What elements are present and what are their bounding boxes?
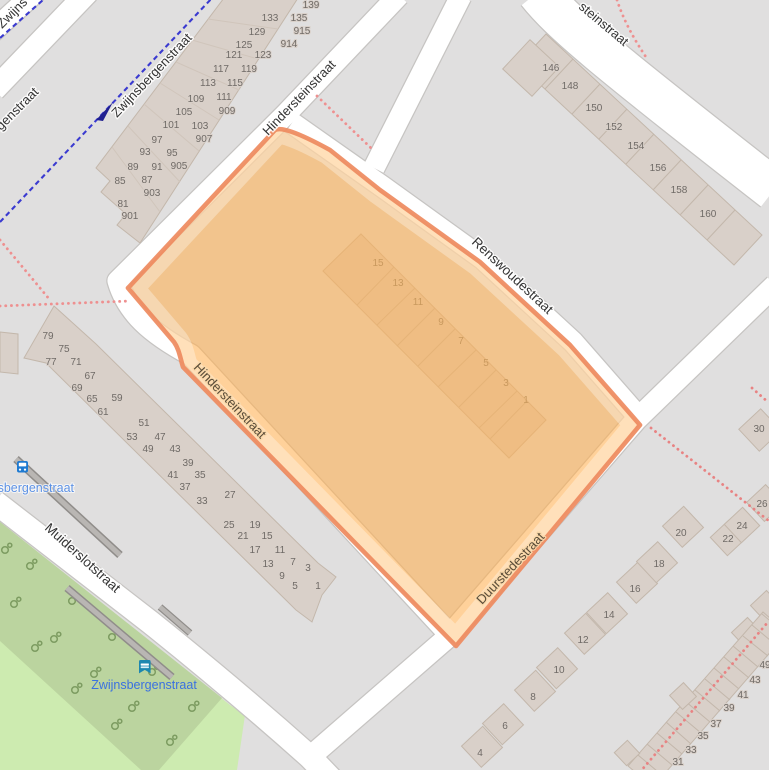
- svg-text:33: 33: [196, 496, 208, 507]
- svg-text:sbergenstraat: sbergenstraat: [0, 481, 75, 495]
- svg-text:35: 35: [697, 731, 709, 742]
- svg-text:61: 61: [97, 407, 109, 418]
- svg-text:111: 111: [216, 92, 232, 103]
- svg-text:30: 30: [753, 424, 765, 435]
- svg-text:49: 49: [759, 660, 769, 671]
- svg-text:89: 89: [127, 162, 139, 173]
- svg-text:75: 75: [58, 344, 70, 355]
- svg-text:65: 65: [86, 394, 98, 405]
- svg-text:4: 4: [477, 748, 483, 759]
- svg-text:117: 117: [213, 64, 229, 75]
- svg-text:25: 25: [223, 520, 235, 531]
- svg-text:105: 105: [176, 107, 193, 118]
- svg-text:19: 19: [249, 520, 261, 531]
- svg-text:7: 7: [458, 336, 464, 347]
- svg-text:97: 97: [151, 135, 163, 146]
- svg-text:69: 69: [71, 383, 83, 394]
- svg-text:119: 119: [241, 64, 257, 75]
- svg-text:93: 93: [139, 147, 151, 158]
- svg-text:17: 17: [249, 545, 261, 556]
- svg-text:13: 13: [392, 278, 404, 289]
- svg-text:21: 21: [237, 531, 249, 542]
- svg-text:903: 903: [144, 188, 161, 199]
- svg-text:152: 152: [606, 122, 623, 133]
- svg-text:909: 909: [219, 106, 236, 117]
- svg-text:109: 109: [188, 94, 205, 105]
- svg-text:3: 3: [503, 378, 509, 389]
- svg-text:113: 113: [200, 78, 216, 89]
- svg-text:27: 27: [224, 490, 236, 501]
- svg-text:22: 22: [722, 534, 734, 545]
- svg-text:11: 11: [275, 545, 286, 556]
- svg-text:Zwijnsbergenstraat: Zwijnsbergenstraat: [91, 678, 197, 692]
- svg-text:79: 79: [42, 331, 54, 342]
- svg-text:1: 1: [523, 395, 529, 406]
- svg-text:133: 133: [262, 13, 279, 24]
- svg-text:915: 915: [294, 26, 311, 37]
- svg-text:35: 35: [194, 470, 206, 481]
- svg-text:77: 77: [45, 357, 57, 368]
- svg-text:85: 85: [114, 176, 126, 187]
- svg-text:39: 39: [182, 458, 194, 469]
- svg-text:5: 5: [483, 358, 489, 369]
- svg-text:907: 907: [196, 134, 213, 145]
- svg-text:43: 43: [749, 675, 761, 686]
- svg-text:37: 37: [710, 719, 722, 730]
- svg-text:103: 103: [192, 121, 209, 132]
- svg-text:53: 53: [126, 432, 138, 443]
- svg-text:41: 41: [167, 470, 179, 481]
- svg-text:146: 146: [543, 63, 560, 74]
- svg-text:15: 15: [261, 531, 273, 542]
- svg-text:67: 67: [84, 371, 96, 382]
- svg-text:129: 129: [249, 27, 266, 38]
- svg-text:12: 12: [577, 635, 589, 646]
- svg-text:901: 901: [122, 211, 139, 222]
- svg-text:3: 3: [305, 563, 311, 574]
- svg-text:123: 123: [255, 50, 272, 61]
- svg-text:13: 13: [262, 559, 274, 570]
- svg-text:18: 18: [653, 559, 665, 570]
- svg-text:7: 7: [290, 557, 296, 568]
- svg-text:49: 49: [142, 444, 154, 455]
- svg-text:26: 26: [756, 499, 768, 510]
- svg-text:11: 11: [413, 297, 424, 308]
- svg-text:135: 135: [291, 13, 308, 24]
- svg-text:33: 33: [685, 745, 697, 756]
- svg-text:9: 9: [279, 571, 285, 582]
- svg-text:158: 158: [671, 185, 688, 196]
- svg-text:87: 87: [141, 175, 153, 186]
- svg-text:15: 15: [372, 258, 384, 269]
- svg-text:81: 81: [117, 199, 129, 210]
- svg-text:95: 95: [166, 148, 178, 159]
- svg-text:115: 115: [227, 78, 243, 89]
- svg-text:41: 41: [737, 690, 749, 701]
- svg-text:101: 101: [163, 120, 180, 131]
- svg-text:139: 139: [303, 0, 320, 11]
- svg-text:6: 6: [502, 721, 508, 732]
- svg-text:31: 31: [672, 757, 684, 768]
- svg-text:914: 914: [281, 39, 298, 50]
- svg-text:905: 905: [171, 161, 188, 172]
- svg-text:39: 39: [723, 703, 735, 714]
- svg-text:8: 8: [530, 692, 536, 703]
- svg-text:91: 91: [151, 162, 163, 173]
- svg-text:51: 51: [138, 418, 150, 429]
- svg-text:37: 37: [179, 482, 191, 493]
- svg-text:47: 47: [154, 432, 166, 443]
- svg-text:150: 150: [586, 103, 603, 114]
- svg-text:9: 9: [438, 317, 444, 328]
- svg-text:71: 71: [70, 357, 82, 368]
- svg-text:156: 156: [650, 163, 667, 174]
- svg-text:160: 160: [700, 209, 717, 220]
- svg-text:1: 1: [315, 581, 321, 592]
- svg-text:43: 43: [169, 444, 181, 455]
- svg-text:10: 10: [553, 665, 565, 676]
- svg-text:59: 59: [111, 393, 123, 404]
- svg-text:20: 20: [675, 528, 687, 539]
- svg-text:5: 5: [292, 581, 298, 592]
- svg-text:24: 24: [736, 521, 748, 532]
- svg-text:154: 154: [628, 141, 645, 152]
- svg-text:14: 14: [603, 610, 615, 621]
- svg-text:148: 148: [562, 81, 579, 92]
- svg-text:121: 121: [226, 50, 243, 61]
- svg-text:16: 16: [629, 584, 641, 595]
